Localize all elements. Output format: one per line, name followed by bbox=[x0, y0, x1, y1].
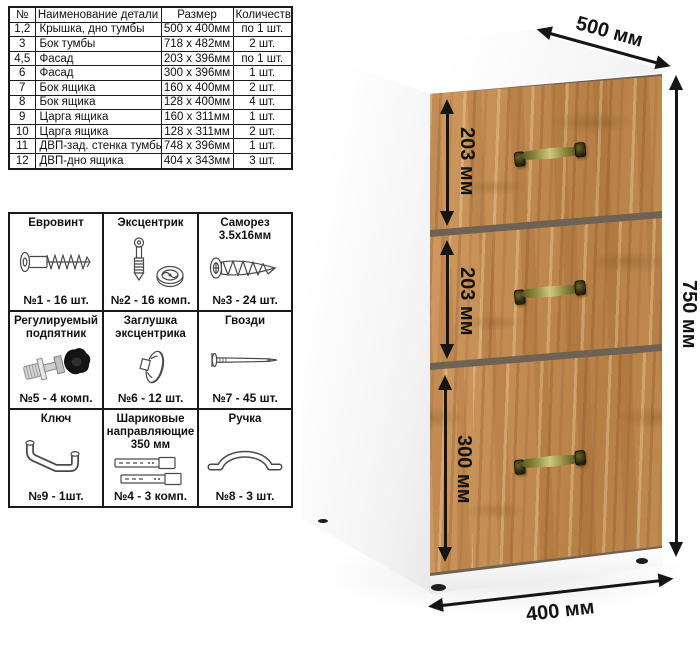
depth-dimension-label: 500 мм bbox=[573, 12, 645, 52]
part-size-cell: 404 х 343мм bbox=[161, 153, 233, 168]
hardware-item-self-tapping-screw: Саморез 3.5х16мм №3 - 24 шт. bbox=[199, 214, 291, 310]
part-size-cell: 203 х 396мм bbox=[161, 51, 233, 66]
hardware-count: №5 - 4 комп. bbox=[19, 391, 92, 405]
part-row: 12 ДВП-дно ящика 404 х 343мм 3 шт. bbox=[9, 153, 292, 168]
hardware-title: Саморез 3.5х16мм bbox=[201, 217, 289, 243]
part-row: 6 Фасад 300 х 396мм 1 шт. bbox=[9, 66, 292, 81]
hardware-grid: Евровинт №1 - 16 шт. Эксцентрик bbox=[8, 212, 293, 508]
part-name-cell: Бок ящика bbox=[35, 80, 161, 95]
hardware-count: №1 - 16 шт. bbox=[23, 293, 89, 307]
header-quantity: Количество bbox=[233, 7, 292, 22]
hardware-count: №8 - 3 шт. bbox=[216, 489, 275, 503]
drawer1-height-label: 203 мм bbox=[455, 127, 478, 196]
part-number-cell: 4,5 bbox=[9, 51, 35, 66]
hardware-item-cam-lock: Эксцентрик №2 - 16 комп. bbox=[104, 214, 197, 310]
handle-mount-icon bbox=[574, 142, 586, 158]
cabinet-foot bbox=[431, 584, 446, 591]
part-qty-cell: 1 шт. bbox=[233, 110, 292, 125]
hardware-title: Ручка bbox=[229, 413, 262, 426]
nail-icon bbox=[207, 351, 283, 369]
part-qty-cell: по 1 шт. bbox=[233, 22, 292, 37]
part-number-cell: 3 bbox=[9, 37, 35, 52]
handle-bar bbox=[520, 453, 581, 469]
drawer1-height-arrow bbox=[446, 113, 449, 212]
parts-table-header-row: № Наименование детали Размер Количество bbox=[9, 7, 292, 22]
part-size-cell: 500 х 400мм bbox=[161, 22, 233, 37]
part-qty-cell: по 1 шт. bbox=[233, 51, 292, 66]
part-qty-cell: 2 шт. bbox=[233, 80, 292, 95]
part-row: 10 Царга ящика 128 х 311мм 2 шт. bbox=[9, 124, 292, 139]
cabinet-side-panel bbox=[301, 51, 430, 592]
part-number-cell: 8 bbox=[9, 95, 35, 110]
euro-screw-icon bbox=[18, 247, 94, 277]
part-name-cell: Бок тумбы bbox=[35, 37, 161, 52]
furniture-assembly-diagram: № Наименование детали Размер Количество … bbox=[0, 0, 700, 648]
header-part-name: Наименование детали bbox=[35, 7, 161, 22]
part-name-cell: ДВП-зад. стенка тумбы bbox=[35, 139, 161, 154]
drawer2-height-arrow bbox=[446, 254, 449, 345]
hardware-item-key: Ключ №9 - 1шт. bbox=[10, 410, 102, 506]
part-size-cell: 128 х 400мм bbox=[161, 95, 233, 110]
part-number-cell: 9 bbox=[9, 110, 35, 125]
hardware-item-nails: Гвозди №7 - 45 шт. bbox=[199, 312, 291, 408]
part-size-cell: 718 х 482мм bbox=[161, 37, 233, 52]
drawer2-height-label: 203 мм bbox=[455, 267, 478, 336]
hardware-count: №7 - 45 шт. bbox=[212, 391, 278, 405]
cam-lock-icon bbox=[113, 236, 189, 288]
hardware-item-cam-cap: Заглушка эксцентрика №6 - 12 шт. bbox=[104, 312, 197, 408]
hardware-title: Гвозди bbox=[225, 315, 265, 328]
handle-mount-icon bbox=[574, 450, 586, 466]
hardware-item-adjustable-foot: Регулируемый подпятник №5 - 4 комп. bbox=[10, 312, 102, 408]
handle-bar bbox=[520, 145, 581, 161]
part-qty-cell: 3 шт. bbox=[233, 153, 292, 168]
part-qty-cell: 4 шт. bbox=[233, 95, 292, 110]
part-row: 8 Бок ящика 128 х 400мм 4 шт. bbox=[9, 95, 292, 110]
hardware-title: Эксцентрик bbox=[117, 217, 183, 230]
cabinet-foot bbox=[636, 558, 648, 564]
parts-table: № Наименование детали Размер Количество … bbox=[8, 6, 293, 170]
pull-handle-icon bbox=[207, 442, 283, 474]
drawer3-height-label: 300 мм bbox=[452, 435, 475, 504]
hardware-title: Евровинт bbox=[28, 217, 84, 230]
part-qty-cell: 1 шт. bbox=[233, 139, 292, 154]
hex-key-icon bbox=[18, 437, 94, 479]
hardware-title: Шариковые направляющие 350 мм bbox=[106, 413, 195, 453]
hardware-title: Заглушка эксцентрика bbox=[106, 315, 195, 341]
hardware-count: №4 - 3 комп. bbox=[114, 489, 187, 503]
part-name-cell: Бок ящика bbox=[35, 95, 161, 110]
drawer-slides-icon bbox=[113, 453, 189, 489]
part-number-cell: 10 bbox=[9, 124, 35, 139]
part-name-cell: Царга ящика bbox=[35, 110, 161, 125]
cabinet-foot bbox=[318, 519, 328, 523]
hardware-title: Ключ bbox=[41, 413, 71, 426]
part-name-cell: Фасад bbox=[35, 66, 161, 81]
part-name-cell: ДВП-дно ящика bbox=[35, 153, 161, 168]
part-row: 3 Бок тумбы 718 х 482мм 2 шт. bbox=[9, 37, 292, 52]
hardware-count: №3 - 24 шт. bbox=[212, 293, 278, 307]
drawer3-height-arrow bbox=[444, 389, 447, 548]
part-size-cell: 748 х 396мм bbox=[161, 139, 233, 154]
hardware-item-drawer-slides: Шариковые направляющие 350 мм №4 - 3 ком… bbox=[104, 410, 197, 506]
hardware-item-handle: Ручка №8 - 3 шт. bbox=[199, 410, 291, 506]
part-name-cell: Крышка, дно тумбы bbox=[35, 22, 161, 37]
part-row: 1,2 Крышка, дно тумбы 500 х 400мм по 1 ш… bbox=[9, 22, 292, 37]
header-number: № bbox=[9, 7, 35, 22]
hardware-title: Регулируемый подпятник bbox=[12, 315, 100, 341]
part-number-cell: 1,2 bbox=[9, 22, 35, 37]
part-qty-cell: 1 шт. bbox=[233, 66, 292, 81]
hardware-item-euro-screw: Евровинт №1 - 16 шт. bbox=[10, 214, 102, 310]
part-size-cell: 128 х 311мм bbox=[161, 124, 233, 139]
hardware-count: №9 - 1шт. bbox=[28, 489, 84, 503]
part-row: 9 Царга ящика 160 х 311мм 1 шт. bbox=[9, 110, 292, 125]
part-name-cell: Фасад bbox=[35, 51, 161, 66]
part-qty-cell: 2 шт. bbox=[233, 124, 292, 139]
part-size-cell: 300 х 396мм bbox=[161, 66, 233, 81]
cam-cap-icon bbox=[113, 341, 189, 391]
self-tapping-screw-icon bbox=[207, 253, 283, 283]
part-size-cell: 160 х 311мм bbox=[161, 110, 233, 125]
part-row: 4,5 Фасад 203 х 396мм по 1 шт. bbox=[9, 51, 292, 66]
part-qty-cell: 2 шт. bbox=[233, 37, 292, 52]
hardware-count: №2 - 16 комп. bbox=[111, 293, 191, 307]
part-number-cell: 11 bbox=[9, 139, 35, 154]
part-number-cell: 6 bbox=[9, 66, 35, 81]
part-number-cell: 7 bbox=[9, 80, 35, 95]
hardware-count: №6 - 12 шт. bbox=[118, 391, 184, 405]
adjustable-foot-icon bbox=[18, 341, 94, 391]
part-size-cell: 160 х 400мм bbox=[161, 80, 233, 95]
part-name-cell: Царга ящика bbox=[35, 124, 161, 139]
part-number-cell: 12 bbox=[9, 153, 35, 168]
part-row: 7 Бок ящика 160 х 400мм 2 шт. bbox=[9, 80, 292, 95]
handle-bar bbox=[520, 283, 581, 299]
handle-mount-icon bbox=[574, 280, 586, 296]
part-row: 11 ДВП-зад. стенка тумбы 748 х 396мм 1 ш… bbox=[9, 139, 292, 154]
header-size: Размер bbox=[161, 7, 233, 22]
height-dimension-label: 750 мм bbox=[677, 280, 700, 349]
